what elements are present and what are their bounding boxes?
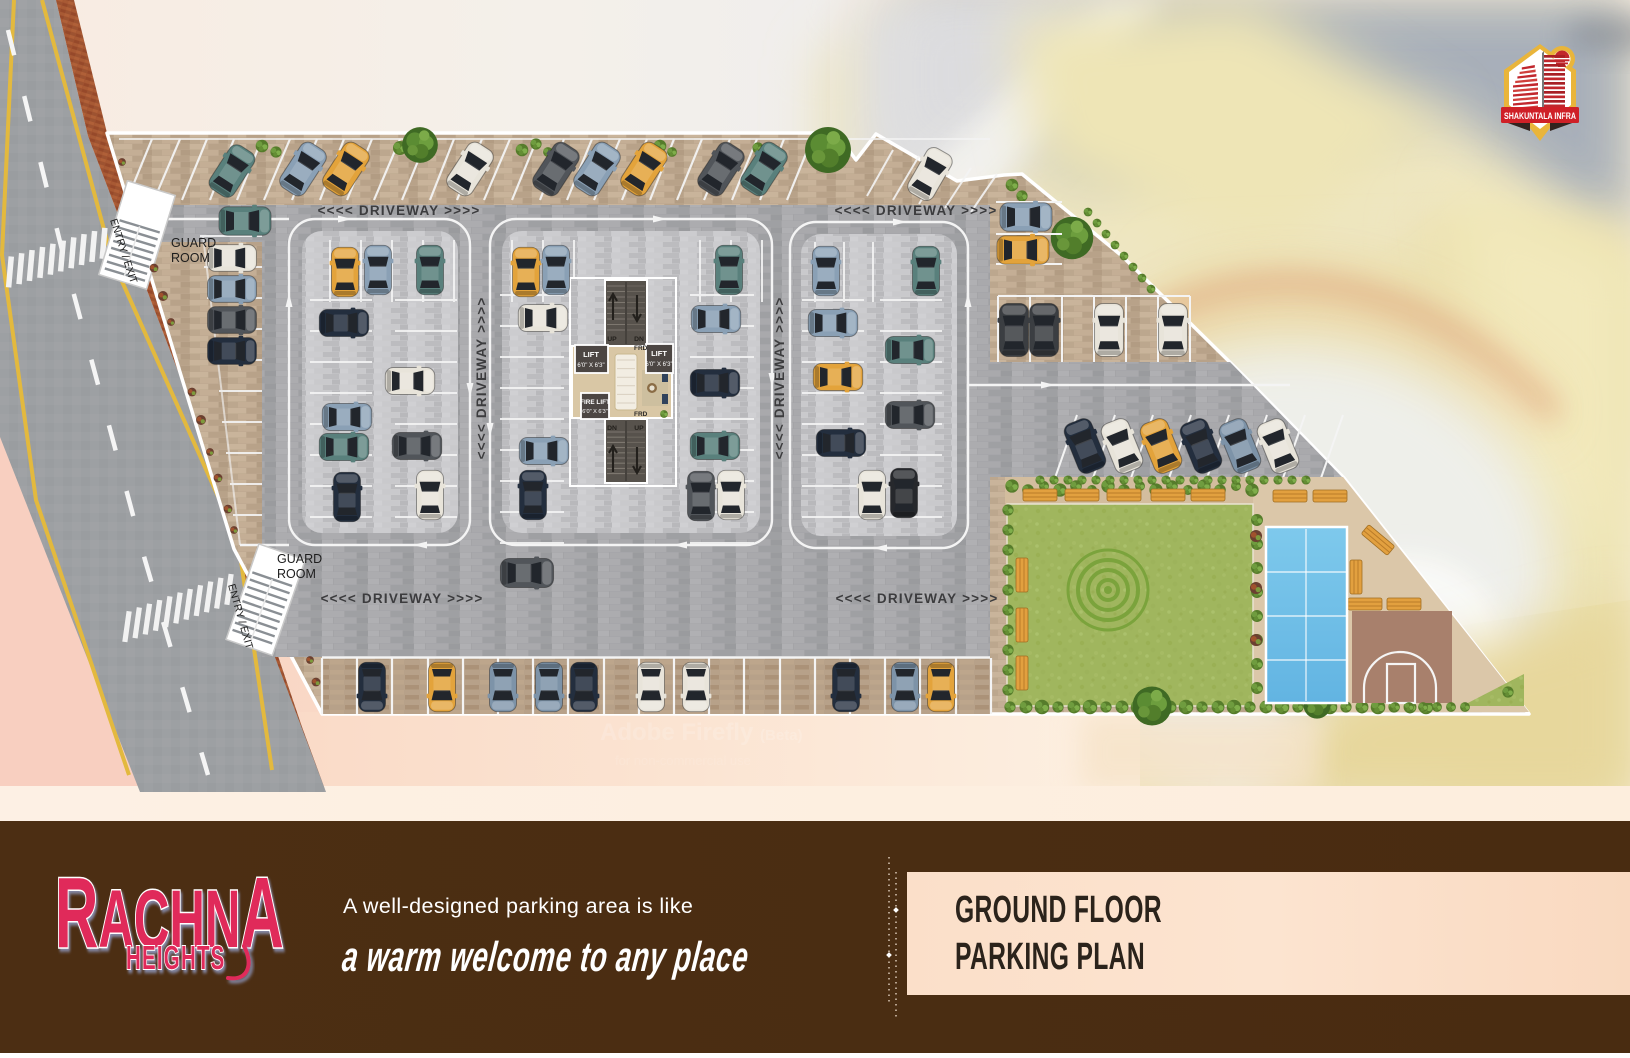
svg-text:LIFT: LIFT	[583, 350, 599, 359]
svg-text:<<<< DRIVEWAY >>>>: <<<< DRIVEWAY >>>>	[473, 297, 489, 460]
svg-text:GROUND FLOOR: GROUND FLOOR	[955, 888, 1162, 931]
svg-text:A well-designed parking area i: A well-designed parking area is like	[343, 894, 693, 918]
svg-text:PARKING PLAN: PARKING PLAN	[955, 935, 1145, 978]
svg-text:6'0" X 6'3": 6'0" X 6'3"	[645, 362, 672, 368]
svg-text:GUARD: GUARD	[171, 236, 216, 250]
svg-text:6'0" X 6'3": 6'0" X 6'3"	[582, 409, 607, 415]
svg-text:FIRE LIFT: FIRE LIFT	[580, 399, 610, 406]
svg-text:DN: DN	[607, 425, 617, 432]
svg-text:FRD: FRD	[634, 411, 648, 418]
svg-text:UP: UP	[607, 336, 617, 343]
svg-text:LIFT: LIFT	[651, 349, 667, 358]
svg-text:FRD: FRD	[634, 345, 648, 352]
svg-text:for non-commercial use: for non-commercial use	[615, 753, 751, 768]
svg-text:SHAKUNTALA INFRA: SHAKUNTALA INFRA	[1504, 111, 1576, 121]
svg-text:<<<< DRIVEWAY >>>>: <<<< DRIVEWAY >>>>	[836, 590, 999, 606]
svg-text:<<<< DRIVEWAY >>>>: <<<< DRIVEWAY >>>>	[321, 590, 484, 606]
svg-text:<<<< DRIVEWAY >>>>: <<<< DRIVEWAY >>>>	[835, 202, 998, 218]
svg-text:DN: DN	[634, 336, 644, 343]
svg-text:<<<< DRIVEWAY >>>>: <<<< DRIVEWAY >>>>	[771, 297, 787, 460]
svg-text:ROOM: ROOM	[277, 567, 316, 581]
svg-text:a warm welcome to any place: a warm welcome to any place	[340, 933, 752, 980]
svg-text:GUARD: GUARD	[277, 552, 322, 566]
svg-text:HEIGHTS: HEIGHTS	[126, 939, 226, 976]
svg-text:<<<< DRIVEWAY >>>>: <<<< DRIVEWAY >>>>	[318, 202, 481, 218]
svg-text:ROOM: ROOM	[171, 251, 210, 265]
svg-text:UP: UP	[634, 425, 644, 432]
svg-text:6'0" X 6'3": 6'0" X 6'3"	[577, 363, 604, 369]
